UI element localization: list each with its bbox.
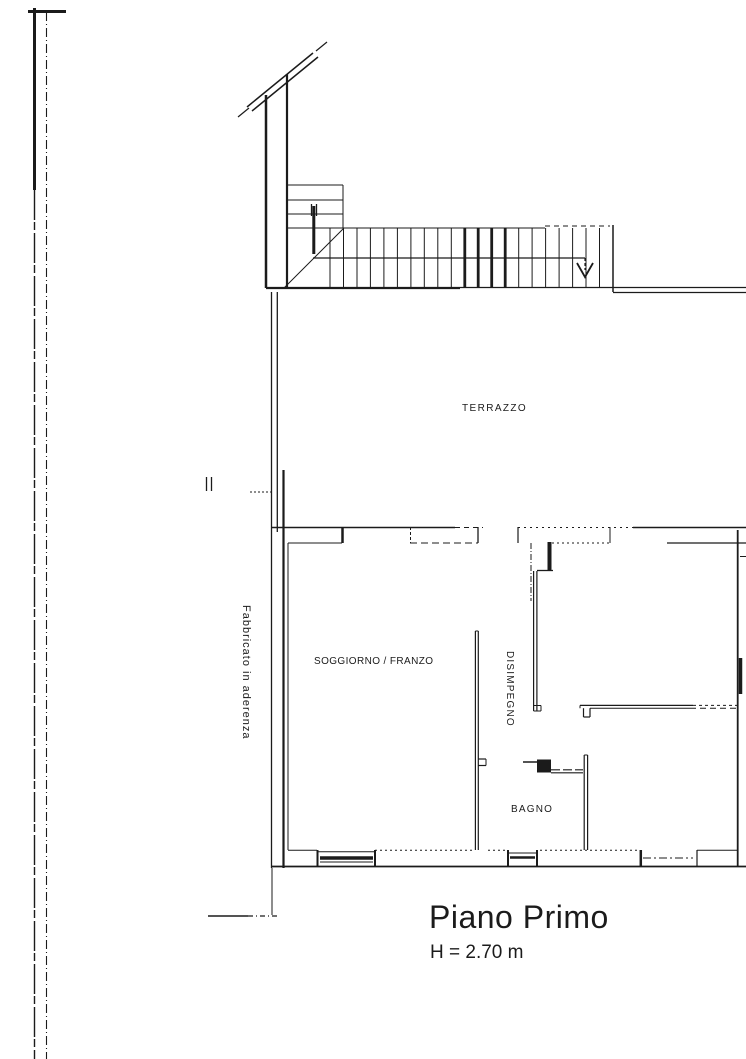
bagno-walls [523,755,588,850]
floor-height-note: H = 2.70 m [430,942,523,964]
bedroom-south-wall [580,705,737,717]
room-label-soggiorno-pranzo: SOGGIORNO / FRANZO [314,656,433,667]
east-wall [738,530,741,867]
terrace-walls [207,292,289,916]
stairs-down-arrow-icon [577,258,593,277]
floor-plan-page: { "document": { "type": "architectural f… [0,0,746,1059]
stair-run [266,225,746,293]
page-margin-lines [28,8,66,1059]
room-label-bagno: BAGNO [511,804,553,815]
roof-break-lines [238,42,327,117]
north-wall [271,527,746,557]
stair-landing [266,74,343,288]
floor-plan-drawing [0,0,746,1059]
page-title: Piano Primo [429,899,609,936]
south-wall [272,850,746,867]
adjacent-building-note: Fabbricato in aderenza [240,605,252,740]
room-label-disimpegno: DISIMPEGNO [504,651,515,727]
room-label-terrazzo: TERRAZZO [462,403,527,414]
